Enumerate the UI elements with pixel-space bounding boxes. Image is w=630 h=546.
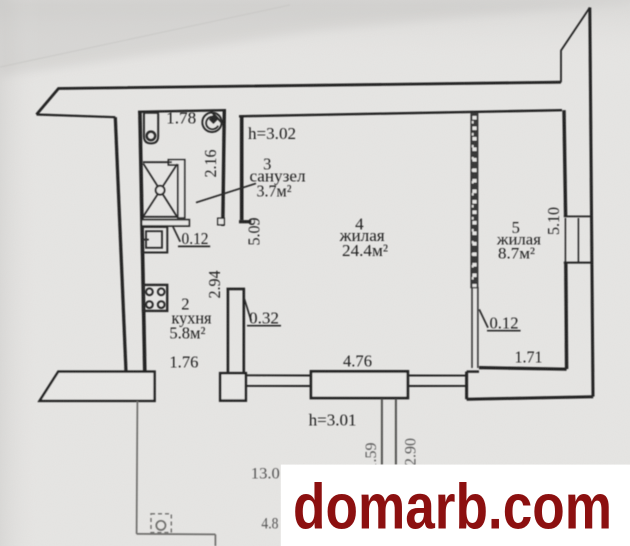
svg-text:domarb.com: domarb.com [293,471,612,543]
